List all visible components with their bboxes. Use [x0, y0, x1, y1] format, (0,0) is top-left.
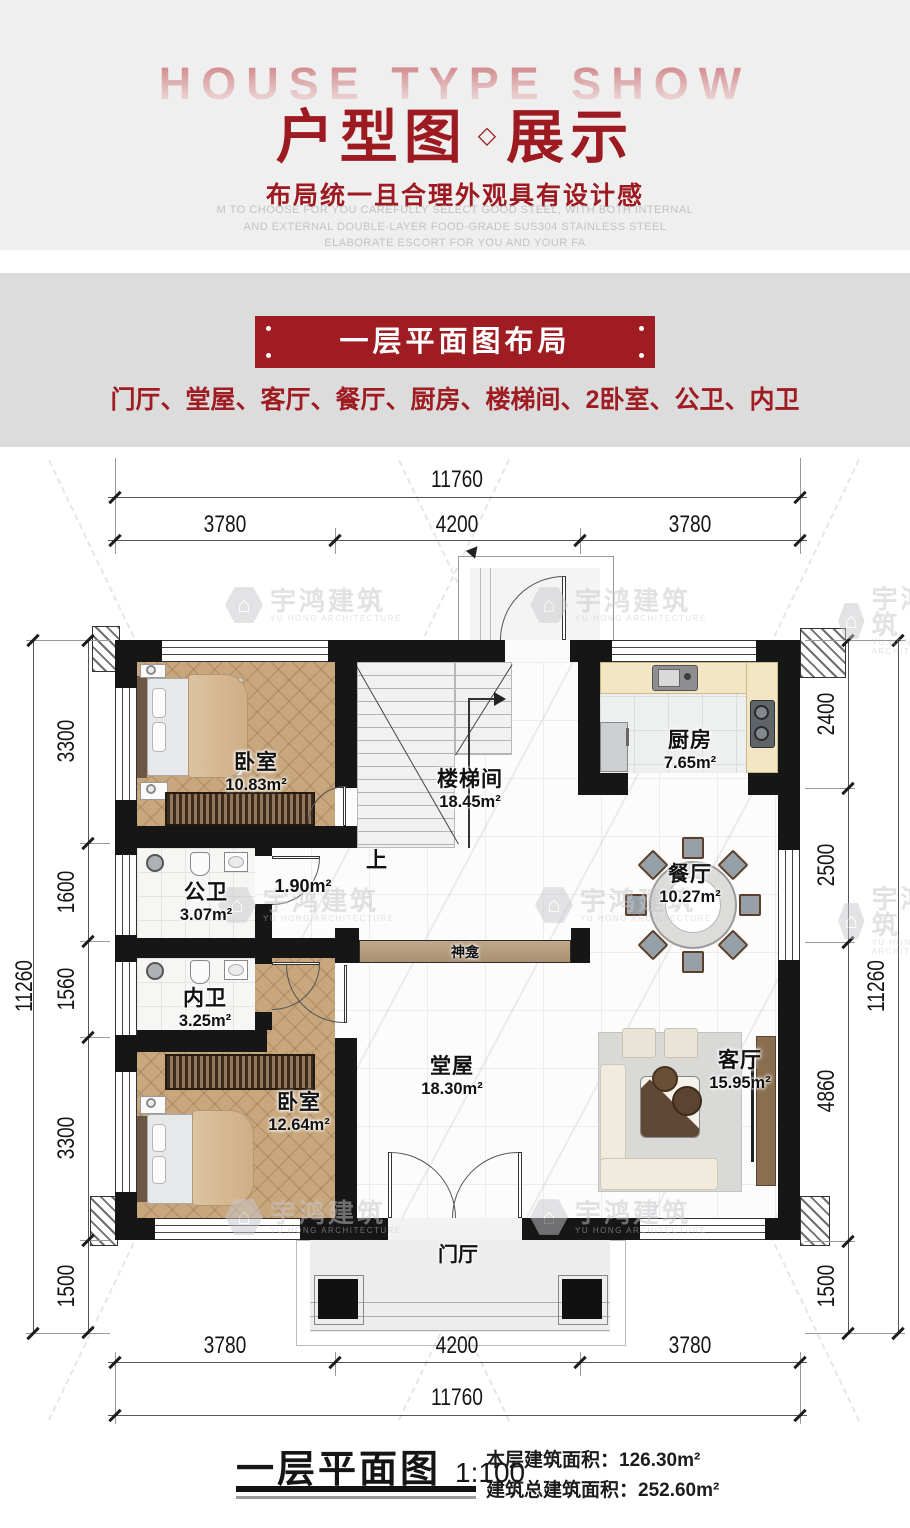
shower-head	[146, 854, 164, 872]
dim-left-total: 11260	[11, 946, 37, 1026]
dim-bottom-seg: 3780	[650, 1332, 730, 1360]
dim-top-seg: 3780	[650, 511, 730, 539]
room-label-hallway: 1.90m²	[233, 876, 373, 897]
window	[612, 640, 756, 662]
banner-dot	[639, 353, 644, 358]
dimension-line	[108, 1415, 807, 1416]
english-line: ELABORATE ESCORT FOR YOU AND YOUR FA	[0, 235, 910, 252]
english-line: AND EXTERNAL DOUBLE-LAYER FOOD-GRADE SUS…	[0, 219, 910, 236]
section-banner-label: 一层平面图布局	[339, 326, 570, 358]
footer-underline-gray	[236, 1496, 476, 1499]
wall-segment	[571, 928, 590, 963]
corner-pilaster	[90, 1196, 118, 1246]
watermark: ⌂ 宇鸿建筑YU HONG ARCHITECTURE	[225, 586, 402, 624]
porch-column	[562, 1279, 602, 1319]
dim-bottom-total: 11760	[417, 1384, 497, 1412]
yuhong-logo-icon: ⌂	[535, 886, 573, 924]
wall-segment	[778, 960, 800, 1240]
room-label-bedroom-top: 卧室 10.83m²	[186, 746, 326, 795]
watermark: ⌂ 宇鸿建筑YU HONG ARCHITECTURE	[530, 1198, 707, 1236]
pillow	[152, 1124, 166, 1152]
wall-segment	[578, 773, 628, 795]
yuhong-logo-icon: ⌂	[530, 586, 568, 624]
watermark: ⌂ 宇鸿建筑YU HONG ARCHITECTURE	[225, 1198, 402, 1236]
dining-chair	[682, 837, 704, 859]
title-left: 户型图	[276, 105, 468, 170]
dim-top-seg: 4200	[417, 511, 497, 539]
footer-areas: 本层建筑面积：126.30m² 建筑总建筑面积：252.60m²	[486, 1446, 719, 1506]
dim-left-seg: 3300	[53, 701, 79, 781]
bed-headboard	[137, 1116, 147, 1202]
shrine-label: 神龛	[425, 942, 505, 962]
wall-segment	[115, 800, 137, 855]
banner-dot	[266, 353, 271, 358]
footer-title-row: 一层平面图 1:100	[236, 1438, 525, 1493]
window	[778, 850, 800, 960]
dim-right-seg: 2400	[813, 674, 839, 754]
dim-right-total: 11260	[863, 946, 889, 1026]
wardrobe	[165, 792, 315, 826]
sink-basin	[228, 856, 244, 868]
wall-segment	[778, 640, 800, 850]
section-banner: 一层平面图布局	[255, 316, 655, 368]
extension-line	[26, 640, 110, 641]
watermark: ⌂ 宇鸿建筑YU HONG ARCHITECTURE	[530, 586, 707, 624]
sink-basin	[228, 964, 244, 976]
dim-left-seg: 3300	[53, 1098, 79, 1178]
porch-step	[310, 1330, 610, 1331]
wall-segment	[335, 928, 359, 963]
dimension-line	[848, 640, 849, 1333]
footer-title: 一层平面图	[236, 1438, 441, 1493]
wall-segment	[137, 826, 357, 848]
banner-dot	[266, 326, 271, 331]
dimension-line	[108, 1362, 807, 1363]
dim-left-seg: 1560	[53, 949, 79, 1029]
room-label-living: 客厅 15.95m²	[670, 1044, 810, 1093]
wall-segment	[335, 662, 357, 788]
dim-right-seg: 1500	[813, 1246, 839, 1326]
toilet	[190, 852, 210, 876]
room-label-entrance: 门厅	[418, 1238, 498, 1267]
wall-segment	[255, 848, 272, 856]
wall-segment	[115, 1035, 137, 1072]
banner-dot	[639, 326, 644, 331]
pillow	[152, 688, 166, 718]
landing-line	[480, 568, 481, 640]
dim-top-seg: 3780	[185, 511, 265, 539]
dim-right-seg: 2500	[813, 825, 839, 905]
sofa	[600, 1158, 718, 1190]
page-title: 户型图◇展示	[0, 90, 910, 174]
window	[115, 855, 137, 935]
wall-segment	[255, 958, 272, 964]
pillow	[152, 1156, 166, 1184]
door-leaf	[344, 965, 347, 1023]
sofa	[600, 1064, 626, 1164]
room-label-inner-bath: 内卫 3.25m²	[135, 982, 275, 1031]
dim-left-seg: 1600	[53, 852, 79, 932]
lamp	[146, 1098, 156, 1108]
wall-segment	[570, 640, 612, 662]
header-english-block: M TO CHOOSE FOR YOU CAREFULLY SELECT GOO…	[0, 202, 910, 252]
floor-area-row: 本层建筑面积：126.30m²	[486, 1446, 719, 1476]
stairs-up-label: 上	[366, 844, 387, 874]
diamond-icon: ◇	[478, 122, 496, 149]
window	[115, 688, 137, 800]
pillow	[152, 722, 166, 752]
lamp	[146, 784, 156, 794]
wall-segment	[748, 773, 778, 795]
door-opening	[388, 1218, 522, 1240]
yuhong-logo-icon: ⌂	[530, 1198, 568, 1236]
wall-segment	[115, 640, 137, 688]
yuhong-logo-icon: ⌂	[838, 902, 865, 940]
shower-head	[146, 962, 164, 980]
yuhong-logo-icon: ⌂	[225, 586, 263, 624]
wall-segment	[328, 640, 505, 662]
lamp	[146, 665, 156, 675]
dimension-line	[108, 497, 807, 498]
room-label-bedroom-bottom: 卧室 12.64m²	[229, 1086, 369, 1135]
title-right: 展示	[506, 105, 634, 170]
room-list: 门厅、堂屋、客厅、餐厅、厨房、楼梯间、2卧室、公卫、内卫	[0, 380, 910, 416]
corner-pilaster	[800, 1196, 830, 1246]
wardrobe	[165, 1054, 315, 1090]
footer-underline-black	[236, 1486, 476, 1492]
yuhong-logo-icon: ⌂	[838, 602, 865, 640]
door-leaf	[518, 1152, 522, 1218]
poster-page: HOUSE TYPE SHOW 户型图◇展示 布局统一且合理外观具有设计感 M …	[0, 0, 910, 1528]
stove-burner	[754, 705, 769, 720]
room-label-kitchen: 厨房 7.65m²	[620, 724, 760, 773]
up-arrow-icon	[494, 692, 506, 706]
dim-bottom-seg: 3780	[185, 1332, 265, 1360]
dimension-line	[108, 540, 807, 541]
room-label-dining: 餐厅 10.27m²	[620, 858, 760, 907]
extension-line	[26, 1333, 110, 1334]
dim-bottom-seg: 4200	[417, 1332, 497, 1360]
toilet	[190, 960, 210, 984]
window	[162, 640, 328, 662]
porch-column	[318, 1279, 358, 1319]
english-line: M TO CHOOSE FOR YOU CAREFULLY SELECT GOO…	[0, 202, 910, 219]
wall-segment	[115, 1192, 137, 1240]
stair-direction-line	[468, 698, 494, 700]
dimension-line	[898, 640, 899, 1333]
watermark: ⌂ 宇鸿建筑YU HONG ARCHITECTURE	[838, 886, 910, 956]
faucet	[684, 673, 691, 680]
door-opening	[505, 640, 570, 662]
dining-chair	[682, 951, 704, 973]
dim-right-seg: 4860	[813, 1051, 839, 1131]
wall-segment	[137, 938, 357, 958]
watermark: ⌂ 宇鸿建筑YU HONG ARCHITECTURE	[838, 586, 910, 656]
bed-headboard	[137, 676, 147, 778]
wall-segment	[115, 935, 137, 962]
wall-segment	[137, 1030, 267, 1052]
room-label-main-hall: 堂屋 18.30m²	[382, 1050, 522, 1099]
dim-left-seg: 1500	[53, 1246, 79, 1326]
floor-cushion	[622, 1028, 656, 1058]
window	[115, 962, 137, 1035]
window	[115, 1072, 137, 1192]
room-label-stairwell: 楼梯间 18.45m²	[400, 763, 540, 812]
extension-line	[805, 1333, 905, 1334]
landing-line	[490, 568, 491, 640]
kitchen-sink-basin	[658, 669, 680, 687]
yuhong-logo-icon: ⌂	[225, 1198, 263, 1236]
dimension-line	[88, 640, 89, 1333]
total-area-row: 建筑总建筑面积：252.60m²	[486, 1476, 719, 1506]
dim-top-total: 11760	[417, 466, 497, 494]
